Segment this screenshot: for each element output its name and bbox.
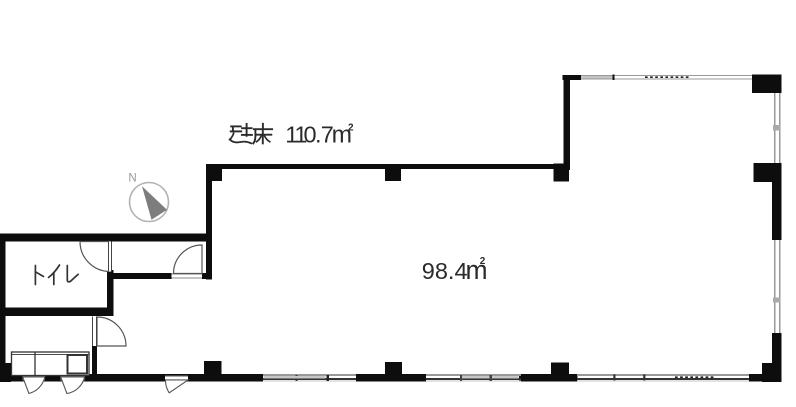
svg-text:2: 2 — [348, 122, 354, 133]
svg-text:2: 2 — [480, 256, 486, 267]
svg-text:98.4: 98.4 — [422, 258, 468, 284]
svg-text:N: N — [128, 172, 136, 184]
svg-text:110.7: 110.7 — [285, 122, 333, 148]
